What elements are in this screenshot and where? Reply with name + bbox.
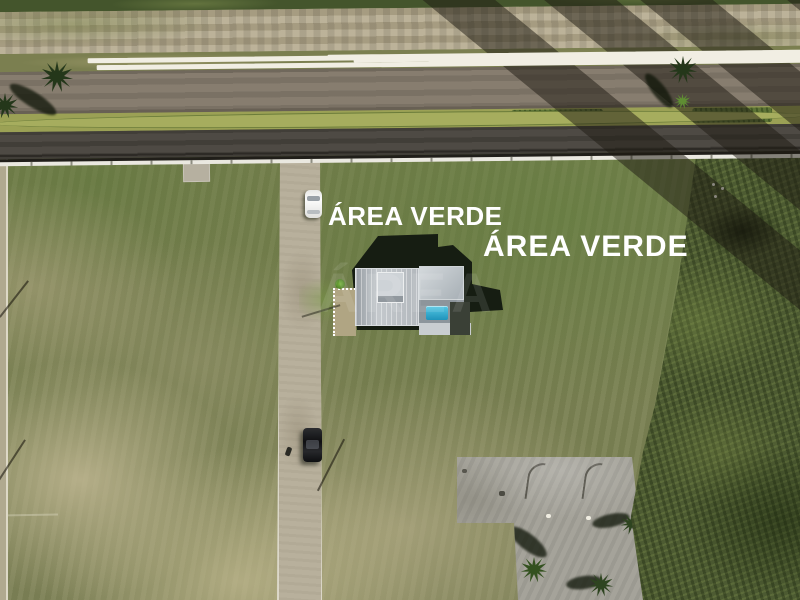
black-car xyxy=(303,428,322,462)
pavement-marker xyxy=(546,514,551,518)
car-roof-highlight xyxy=(306,440,319,449)
left-edge-path xyxy=(0,158,8,600)
pavement-drain xyxy=(499,491,505,496)
watermark-text: ÁREA xyxy=(318,260,497,325)
light-pole-shadow xyxy=(581,461,602,501)
area-verde-label-left: ÁREA VERDE xyxy=(328,203,503,229)
car-rear-window xyxy=(307,210,320,214)
gravel-path xyxy=(276,158,324,600)
pavement-marker xyxy=(586,516,591,520)
car-windshield xyxy=(307,196,320,201)
white-car xyxy=(305,190,322,218)
pavement-drain xyxy=(462,469,467,473)
aerial-photo: ÁREA ÁREA VERDE ÁREA VERDE xyxy=(0,0,800,600)
area-verde-label-right: ÁREA VERDE xyxy=(483,232,689,262)
light-pole-shadow xyxy=(524,461,545,501)
